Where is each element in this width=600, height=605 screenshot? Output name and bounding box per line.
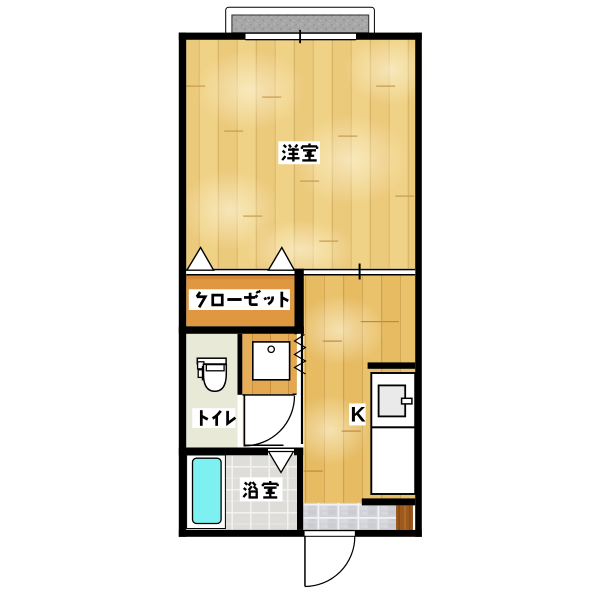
svg-text:K: K xyxy=(351,404,366,427)
